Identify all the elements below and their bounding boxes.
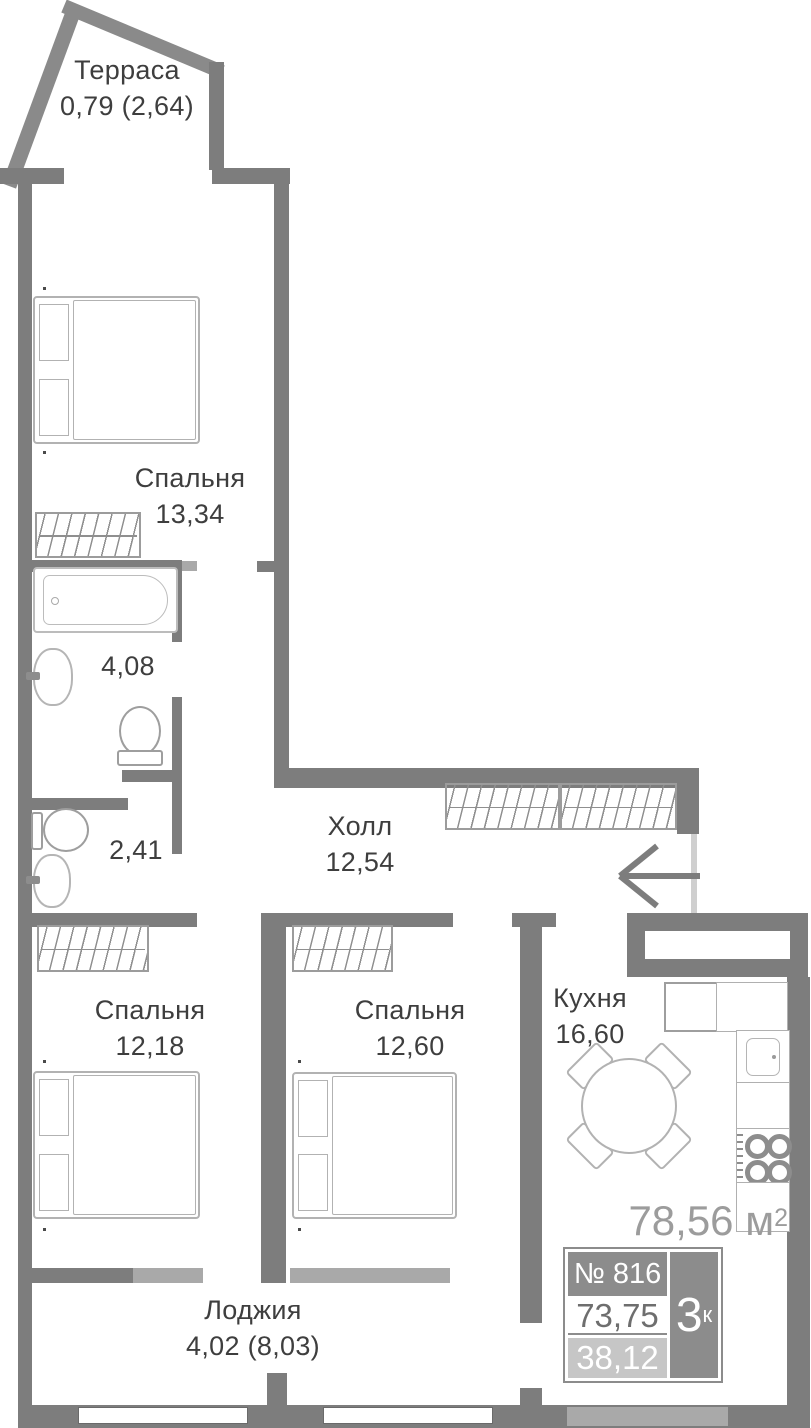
- burner: [767, 1134, 792, 1159]
- kitchen-counter: [716, 982, 788, 1032]
- double-bed: [33, 296, 200, 444]
- pillow: [39, 1079, 69, 1136]
- double-bed: [33, 1071, 200, 1219]
- bathroom-area: 4,08: [88, 648, 168, 684]
- wall: [257, 561, 274, 572]
- total-area: 78,56 м2: [520, 1197, 788, 1245]
- loggia-window: [323, 1407, 493, 1424]
- wall: [28, 798, 128, 810]
- wall: [520, 1388, 542, 1408]
- hall-name: Холл: [295, 808, 425, 844]
- mattress: [332, 1076, 453, 1215]
- terrace-name: Терраса: [32, 52, 222, 88]
- kitchen-sink-faucet: [772, 1055, 776, 1059]
- rooms-count: 3к: [670, 1252, 718, 1378]
- entrance-arrow-icon: [605, 835, 705, 920]
- rooms-count-value: 3: [676, 1288, 703, 1343]
- pillow: [39, 379, 69, 436]
- bedroom2-area: 12,18: [50, 1028, 250, 1064]
- dimension-dot: [298, 1228, 301, 1231]
- bathtub: [33, 567, 178, 633]
- bedroom1-area: 13,34: [90, 496, 290, 532]
- loggia-glazing: [290, 1268, 450, 1283]
- mattress: [73, 300, 196, 440]
- wall: [520, 913, 542, 1323]
- wc-area: 2,41: [96, 832, 176, 868]
- door-leaf: [180, 561, 197, 571]
- double-bed: [292, 1072, 457, 1219]
- rooms-count-suffix: к: [703, 1302, 713, 1328]
- toilet-bowl: [43, 808, 89, 852]
- kitchen-window: [645, 931, 790, 959]
- terrace-area: 0,79 (2,64): [32, 88, 222, 124]
- bedroom3-label: Спальня 12,60: [310, 992, 510, 1064]
- dimension-dot: [298, 1060, 301, 1063]
- dining-table: [581, 1058, 677, 1154]
- total-area-sup: 2: [774, 1204, 788, 1232]
- loggia-window: [78, 1407, 248, 1424]
- loggia-area: 4,02 (8,03): [140, 1328, 366, 1364]
- dimension-dot: [43, 451, 46, 454]
- bathroom-label: 4,08: [88, 648, 168, 684]
- apartment-number: № 816: [568, 1252, 667, 1296]
- wall: [122, 770, 182, 782]
- hall-label: Холл 12,54: [295, 808, 425, 880]
- faucet: [26, 876, 40, 884]
- toilet-tank: [31, 812, 43, 850]
- wall: [787, 977, 810, 1428]
- wall: [677, 788, 699, 834]
- bedroom1-label: Спальня 13,34: [90, 460, 290, 532]
- bedroom2-name: Спальня: [50, 992, 250, 1028]
- loggia-name: Лоджия: [140, 1292, 366, 1328]
- bedroom3-name: Спальня: [310, 992, 510, 1028]
- wardrobe: [292, 925, 393, 972]
- dimension-dot: [43, 1060, 46, 1063]
- bedroom3-area: 12,60: [310, 1028, 510, 1064]
- apartment-badge: № 816 3к 73,75 38,12: [563, 1247, 723, 1383]
- kitchen-label: Кухня 16,60: [505, 980, 675, 1052]
- total-area-value: 78,56: [628, 1197, 733, 1244]
- kitchen-area: 16,60: [505, 1016, 675, 1052]
- wall: [0, 168, 64, 184]
- wardrobe: [445, 783, 560, 830]
- pillow: [39, 304, 69, 361]
- hall-area: 12,54: [295, 844, 425, 880]
- loggia-label: Лоджия 4,02 (8,03): [140, 1292, 366, 1364]
- mattress: [73, 1075, 196, 1215]
- bedroom1-name: Спальня: [90, 460, 290, 496]
- faucet: [26, 672, 40, 680]
- wall: [28, 1268, 133, 1283]
- wardrobe: [560, 783, 677, 830]
- bathtub-inner: [43, 575, 168, 625]
- dimension-dot: [43, 1228, 46, 1231]
- wc-label: 2,41: [96, 832, 176, 868]
- terrace-label: Терраса 0,79 (2,64): [32, 52, 222, 124]
- bedroom2-label: Спальня 12,18: [50, 992, 250, 1064]
- wardrobe: [37, 925, 149, 972]
- loggia-glazing: [133, 1268, 203, 1283]
- secondary-area: 38,12: [568, 1338, 667, 1378]
- pillow: [298, 1154, 328, 1211]
- kitchen-bottom-window: [567, 1407, 728, 1426]
- wall: [261, 913, 286, 1283]
- dimension-dot: [43, 287, 46, 290]
- stove: [736, 1128, 790, 1184]
- pillow: [39, 1154, 69, 1211]
- bathtub-drain: [51, 597, 59, 605]
- kitchen-counter: [736, 1082, 790, 1130]
- living-area: 73,75: [568, 1299, 667, 1335]
- toilet-tank: [117, 750, 163, 766]
- toilet-bowl: [119, 706, 161, 756]
- pillow: [298, 1080, 328, 1137]
- total-area-unit: м: [734, 1197, 775, 1244]
- kitchen-name: Кухня: [505, 980, 675, 1016]
- kitchen-sink: [736, 1030, 790, 1084]
- floor-plan: Терраса 0,79 (2,64) Спальня 13,34 4,08 2…: [0, 0, 811, 1428]
- wall: [267, 1373, 287, 1408]
